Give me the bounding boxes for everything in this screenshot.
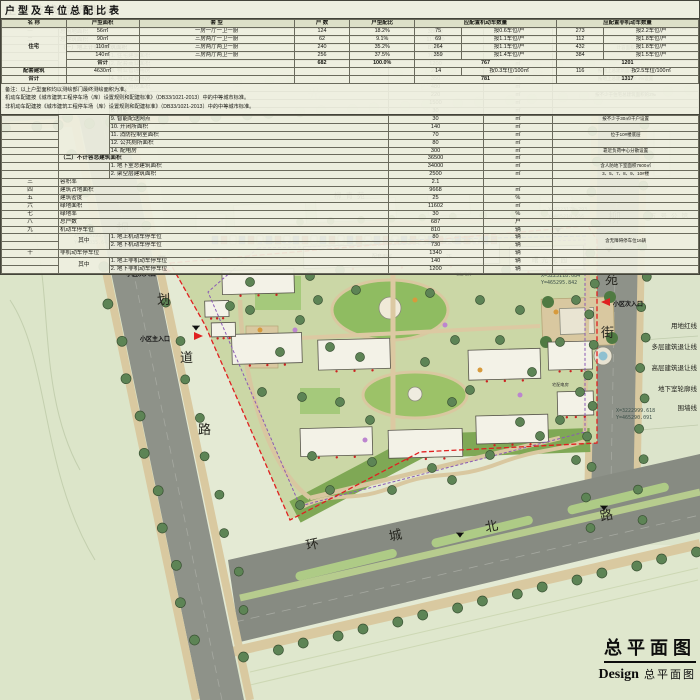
table-cell: ㎡ (483, 163, 553, 171)
table-cell: ㎡ (483, 131, 553, 139)
table-cell (2, 258, 59, 266)
table-cell (350, 68, 415, 76)
building (388, 428, 463, 458)
table-cell (553, 187, 699, 195)
table-cell (2, 155, 59, 163)
building (211, 322, 235, 337)
table-cell (553, 266, 699, 274)
table-cell: % (483, 210, 553, 218)
table-cell: 2500 (388, 171, 483, 179)
table-cell: 三 (2, 179, 59, 187)
table-cell: 按0.3车位/100㎡ (462, 68, 557, 76)
table-cell: 辆 (483, 242, 553, 250)
note-1: 备注：以上户型面积均以测绘部门最终测绘面积为准。 (5, 86, 695, 94)
table-cell (2, 115, 59, 123)
table-cell (2, 123, 59, 131)
table-cell: ㎡ (483, 115, 553, 123)
table-cell: 绿地面积 (59, 202, 388, 210)
table-cell: 140 (388, 258, 483, 266)
coord-4-y: Y=465290.091 (616, 415, 652, 421)
table-cell: 140㎡ (66, 52, 139, 60)
table-cell: 应配置非机动车数量 (556, 20, 698, 28)
table-cell (294, 76, 350, 84)
table-cell: 112 (556, 36, 603, 44)
table-cell: 按2.5车位/100㎡ (604, 68, 699, 76)
table-cell: 34000 (388, 163, 483, 171)
power-room-tag-2: 宅配电房 (552, 381, 569, 388)
table-cell: 合计 (2, 76, 67, 84)
table-cell (2, 131, 59, 139)
table-cell: 按1.1车位/户 (462, 36, 557, 44)
table-cell (139, 60, 294, 68)
table-cell: 辆 (483, 250, 553, 258)
table-cell: 1201 (556, 60, 698, 68)
legend-item-wall-line: 围墙线 (678, 403, 698, 412)
table-cell: 辆 (483, 234, 553, 242)
table-cell: 六 (2, 202, 59, 210)
table-cell: 辆 (483, 226, 553, 234)
table-cell (553, 123, 699, 131)
table-cell: 100.0% (350, 60, 415, 68)
table-cell: 辆 (483, 258, 553, 266)
table-cell: 按1.5车位/户 (604, 52, 699, 60)
table-cell: 11602 (388, 202, 483, 210)
title-block: 总平面图 Design 总平面图 (558, 634, 696, 683)
table-cell: 116 (556, 68, 603, 76)
table-cell (553, 194, 699, 202)
table-cell: 80 (388, 139, 483, 147)
table-cell: 781 (414, 76, 556, 84)
table-cell: 69 (414, 36, 461, 44)
table-cell: 4630㎡ (66, 68, 139, 76)
table-cell: 1. 地上非机动车停车位 (109, 258, 388, 266)
table-cell: 应配置机动车数量 (414, 20, 556, 28)
legend-item-red-line: 用地红线 (671, 321, 698, 330)
table-cell: 11. 消防控制室面积 (109, 131, 388, 139)
table-cell (2, 163, 59, 171)
road-bottom-char-0: 环 (305, 536, 321, 553)
table-cell: 户 (483, 218, 553, 226)
table-cell: 10. 开闭所面积 (109, 123, 388, 131)
road-left-char-1: 划 (157, 292, 170, 307)
table-cell: 273 (556, 28, 603, 36)
coord-3-y: Y=465295.842 (541, 280, 577, 286)
table-cell (2, 139, 59, 147)
note-2: 机动车配建按《城市建筑工程停车场（库）设置规则和配建标准》（DB33/1021-… (5, 94, 695, 102)
table-cell: 1. 地上机动车停车位 (109, 234, 388, 242)
table-cell: 总户数 (59, 218, 388, 226)
table-cell: 按1.4车位/户 (462, 52, 557, 60)
table-cell: 三房两厅两卫一厨 (139, 52, 294, 60)
table-cell: % (483, 194, 553, 202)
table-cell: 767 (414, 60, 556, 68)
entrance-secondary-right-label: 小区次入口 (612, 300, 643, 308)
table-cell: 1200 (388, 266, 483, 274)
table-cell: 含人防地下室面积7600㎡ (553, 163, 699, 171)
table-cell: ㎡ (483, 123, 553, 131)
table-cell: 建筑占地面积 (59, 187, 388, 195)
legend-item-basement-outline: 地下室轮廓线 (658, 384, 698, 393)
table-cell: 264 (414, 44, 461, 52)
table-cell: 绿地率 (59, 210, 388, 218)
table-cell: 非机动车停车位 (59, 250, 388, 258)
table-cell (2, 242, 59, 250)
table-cell: ㎡ (483, 147, 553, 155)
table-cell: 9.1% (350, 36, 415, 44)
site-plan-sheet: { "title_block": {"title":"总平面图","design… (0, 0, 700, 700)
table-cell: 12. 公共厕所面积 (109, 139, 388, 147)
table-cell: 432 (556, 44, 603, 52)
table-cell: 八 (2, 218, 59, 226)
table-cell: 按2.2车位/户 (604, 28, 699, 36)
table-cell: 容积率 (59, 179, 388, 187)
table-cell: 1317 (556, 76, 698, 84)
table-cell: 按1.8车位/户 (604, 36, 699, 44)
table-cell: 30 (388, 210, 483, 218)
table-cell: 套 型 (139, 20, 294, 28)
legend-item-multistorey-setback: 多层建筑退让线 (652, 342, 698, 351)
table-cell: 730 (388, 242, 483, 250)
table-cell: 含无障碍停车位16辆 (553, 234, 699, 250)
table-cell: 75 (414, 28, 461, 36)
table-cell (66, 76, 139, 84)
table-cell (2, 234, 59, 242)
table-cell: 359 (414, 52, 461, 60)
coord-4-x: X=3222999.618 (616, 408, 655, 414)
table-cell: 9668 (388, 187, 483, 195)
table-cell: 2. 地下非机动车停车位 (109, 266, 388, 274)
sheet-title-cn-sub: 总平面图 (644, 669, 696, 681)
table-cell: 25 (388, 194, 483, 202)
table-cell: 256 (294, 52, 350, 60)
table-cell: 140 (388, 123, 483, 131)
table-cell (59, 171, 110, 179)
table-cell: 9. 智能配送网点 (109, 115, 388, 123)
table-cell: 682 (294, 60, 350, 68)
parking-title: 户型及车位总配比表 (1, 1, 699, 19)
table-cell (483, 179, 553, 187)
parking-panel: 户型及车位总配比表 名 称户型面积套 型户 数户型配比应配置机动车数量应配置非机… (0, 0, 700, 115)
table-cell: 按1.8车位/户 (604, 44, 699, 52)
table-cell: 靠近负荷中心分散设置 (553, 147, 699, 155)
note-3: 非机动车配建按《城市建筑工程停车场（库）设置规则和配建标准》（DB33/1021… (5, 103, 695, 111)
table-cell: 2. 架空层建筑面积 (109, 171, 388, 179)
table-cell: 80 (388, 234, 483, 242)
table-cell (553, 218, 699, 226)
table-cell (350, 76, 415, 84)
table-cell: 按0.6车位/户 (462, 28, 557, 36)
table-cell: 建筑密度 (59, 194, 388, 202)
building (232, 333, 303, 365)
legend-item-highrise-setback: 高层建筑退让线 (652, 363, 698, 372)
sheet-title-en: Design (598, 667, 638, 682)
table-cell: 30 (388, 115, 483, 123)
building (557, 391, 594, 416)
table-cell: 户型面积 (66, 20, 139, 28)
table-cell: （二）不计容总建筑面积 (59, 155, 388, 163)
table-cell: 1. 地下室总建筑面积 (109, 163, 388, 171)
table-cell: ㎡ (483, 155, 553, 163)
table-cell: 62 (294, 36, 350, 44)
table-cell (2, 171, 59, 179)
table-cell: 37.5% (350, 52, 415, 60)
table-cell: 四 (2, 187, 59, 195)
table-cell (139, 76, 294, 84)
table-cell: 其中 (59, 234, 110, 250)
table-cell: 机动车停车位 (59, 226, 388, 234)
table-cell: 按不少于30㎡/千户设置 (553, 115, 699, 123)
table-cell: 配套建筑 (2, 68, 67, 76)
table-cell: 110㎡ (66, 44, 139, 52)
table-cell: 户型配比 (350, 20, 415, 28)
building (205, 300, 229, 317)
table-cell: 240 (294, 44, 350, 52)
table-cell: 三房两厅一卫一厨 (139, 36, 294, 44)
table-cell (59, 163, 110, 171)
table-cell: 2.1 (388, 179, 483, 187)
table-cell: 1340 (388, 250, 483, 258)
table-cell (553, 210, 699, 218)
parking-table: 名 称户型面积套 型户 数户型配比应配置机动车数量应配置非机动车数量住宅56㎡一… (1, 19, 699, 84)
table-cell: 90㎡ (66, 36, 139, 44)
table-cell: 70 (388, 131, 483, 139)
sheet-title: 总平面图 (604, 634, 696, 663)
table-cell: 五 (2, 194, 59, 202)
table-cell: 35.2% (350, 44, 415, 52)
table-cell: 名 称 (2, 20, 67, 28)
table-cell: 户 数 (294, 20, 350, 28)
table-cell: 18.2% (350, 28, 415, 36)
table-cell (294, 68, 350, 76)
table-cell (553, 258, 699, 266)
table-cell: ㎡ (483, 139, 553, 147)
table-cell: 位于10#楼底层 (553, 131, 699, 139)
table-cell: 七 (2, 210, 59, 218)
entrance-main-left-label: 小区主入口 (139, 335, 170, 343)
table-cell (2, 147, 59, 155)
table-cell: 合计 (66, 60, 139, 68)
table-cell: 其中 (59, 258, 110, 274)
table-cell: 十 (2, 250, 59, 258)
table-cell: 按1.1车位/户 (462, 44, 557, 52)
table-cell (139, 68, 294, 76)
road-right-char-2: 街 (601, 325, 614, 340)
table-cell: 384 (556, 52, 603, 60)
table-cell: 住宅 (2, 28, 67, 68)
table-cell: 2. 地下机动车停车位 (109, 242, 388, 250)
table-cell (553, 250, 699, 258)
table-cell (553, 202, 699, 210)
table-cell: 一房一厅一卫一厨 (139, 28, 294, 36)
table-cell (553, 139, 699, 147)
road-left-char-2: 道 (180, 350, 193, 365)
table-cell: 687 (388, 218, 483, 226)
table-cell: 3、5、7、8、9、10#楼 (553, 171, 699, 179)
road-left-char-3: 路 (198, 422, 211, 437)
table-cell: ㎡ (483, 187, 553, 195)
table-cell: 14. 配电房 (109, 147, 388, 155)
table-cell: 14 (414, 68, 461, 76)
table-cell: ㎡ (483, 171, 553, 179)
table-cell: 三房两厅两卫一厨 (139, 44, 294, 52)
table-cell (553, 179, 699, 187)
table-cell (553, 155, 699, 163)
table-cell: 36500 (388, 155, 483, 163)
table-cell: 810 (388, 226, 483, 234)
table-cell: ㎡ (483, 202, 553, 210)
table-cell: 124 (294, 28, 350, 36)
table-cell: 300 (388, 147, 483, 155)
table-cell: 56㎡ (66, 28, 139, 36)
building (548, 341, 593, 370)
table-cell: 辆 (483, 266, 553, 274)
table-cell (2, 266, 59, 274)
table-cell (553, 226, 699, 234)
table-cell: 九 (2, 226, 59, 234)
